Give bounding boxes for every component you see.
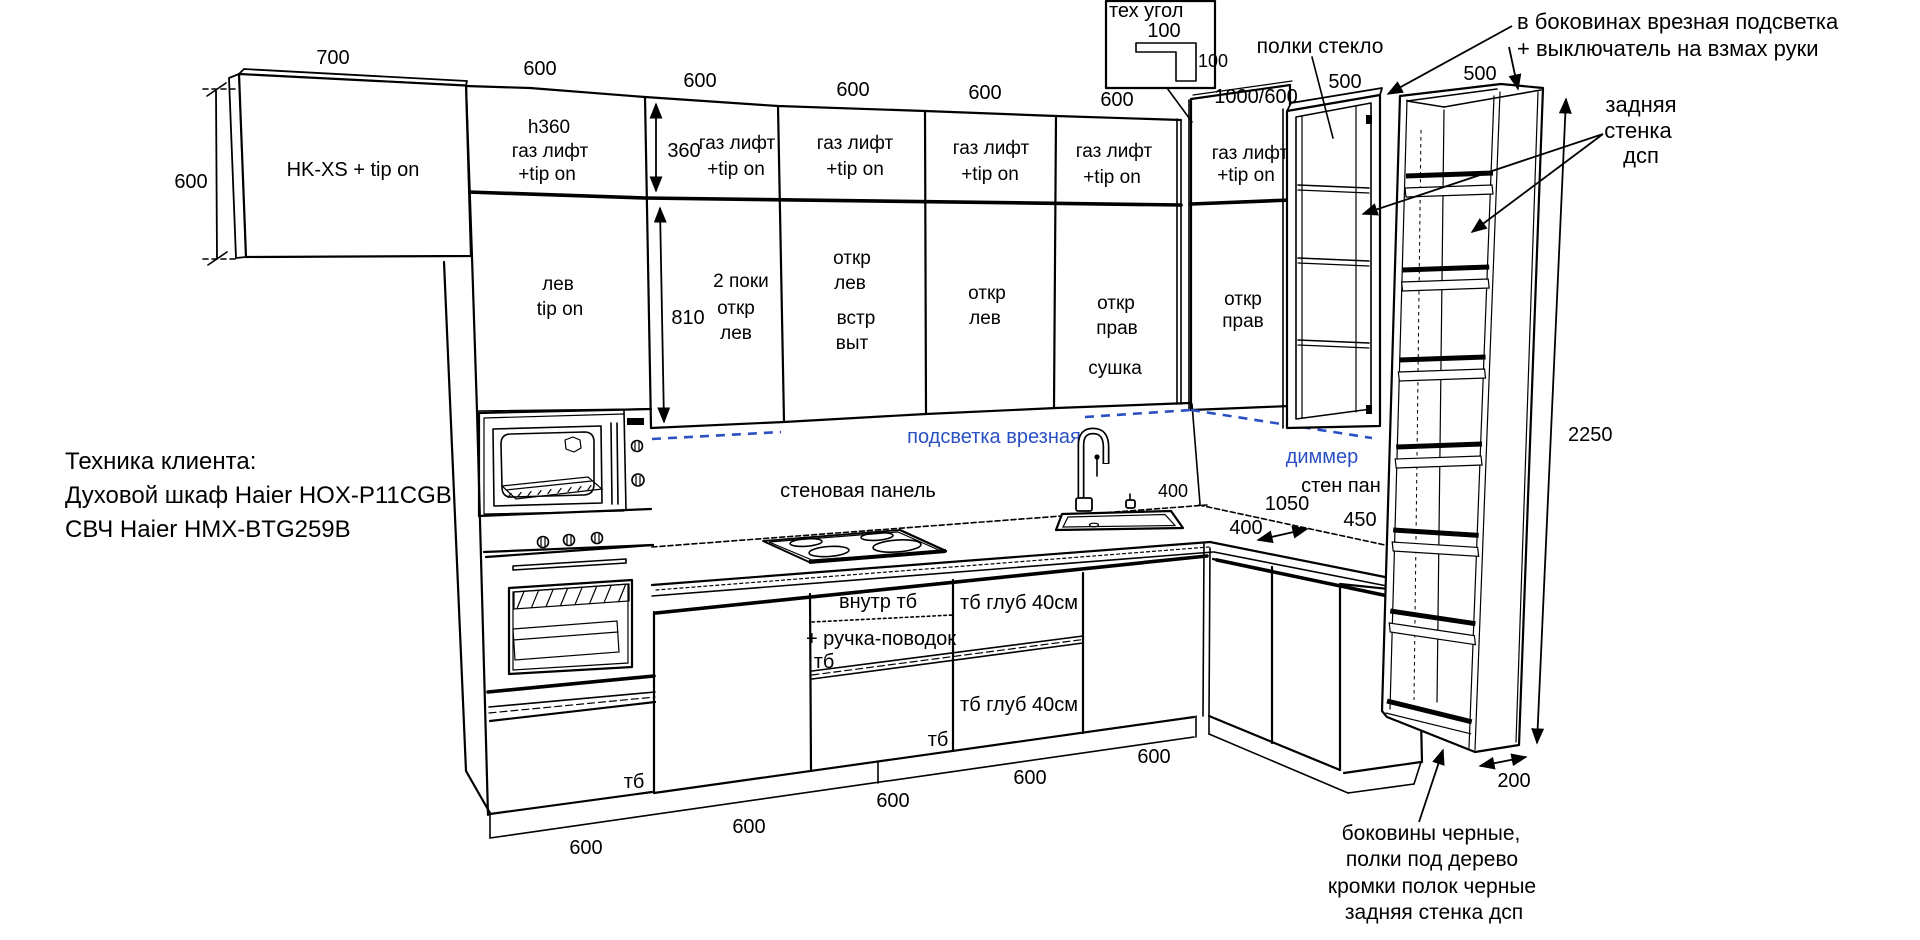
svg-text:диммер: диммер <box>1286 446 1359 468</box>
svg-text:600: 600 <box>569 837 602 859</box>
svg-text:газ лифт: газ лифт <box>699 133 776 154</box>
svg-text:сушка: сушка <box>1088 358 1142 379</box>
svg-text:полки стекло: полки стекло <box>1257 35 1384 58</box>
svg-text:600: 600 <box>174 171 207 193</box>
svg-text:600: 600 <box>876 790 909 812</box>
svg-text:стен пан: стен пан <box>1301 475 1381 497</box>
svg-text:1050: 1050 <box>1265 493 1310 515</box>
svg-text:в боковинах врезная подсветка: в боковинах врезная подсветка <box>1517 9 1839 34</box>
svg-text:450: 450 <box>1343 509 1376 531</box>
svg-text:лев: лев <box>720 323 752 344</box>
svg-text:+ выключатель на взмах руки: + выключатель на взмах руки <box>1517 36 1819 61</box>
svg-text:100: 100 <box>1198 51 1228 71</box>
svg-text:встр: встр <box>837 308 876 329</box>
svg-text:СВЧ Haier HMX-BTG259B: СВЧ Haier HMX-BTG259B <box>65 516 351 543</box>
svg-text:+tip on: +tip on <box>961 164 1019 185</box>
svg-text:600: 600 <box>836 79 869 101</box>
svg-text:откр: откр <box>833 248 871 269</box>
svg-text:задняя стенка дсп: задняя стенка дсп <box>1345 901 1523 924</box>
svg-text:выт: выт <box>836 333 869 354</box>
svg-text:лев: лев <box>542 274 574 295</box>
svg-text:газ лифт: газ лифт <box>1076 141 1153 162</box>
svg-text:600: 600 <box>968 82 1001 104</box>
svg-text:tip on: tip on <box>537 299 583 320</box>
svg-text:кромки полок черные: кромки полок черные <box>1328 875 1536 898</box>
svg-text:откр: откр <box>968 283 1006 304</box>
svg-text:100: 100 <box>1147 20 1180 42</box>
svg-text:газ лифт: газ лифт <box>1212 143 1289 164</box>
svg-text:задняя: задняя <box>1605 92 1676 117</box>
svg-text:200: 200 <box>1497 770 1530 792</box>
svg-text:600: 600 <box>732 816 765 838</box>
svg-text:+tip on: +tip on <box>1083 167 1141 188</box>
svg-text:Духовой шкаф Haier HOX-P11CGB: Духовой шкаф Haier HOX-P11CGB <box>65 482 452 509</box>
svg-text:600: 600 <box>683 70 716 92</box>
svg-text:HK-XS + tip on: HK-XS + tip on <box>287 159 420 181</box>
svg-text:1000/600: 1000/600 <box>1214 86 1297 108</box>
svg-text:+tip on: +tip on <box>826 159 884 180</box>
svg-text:прав: прав <box>1096 318 1138 339</box>
svg-text:+tip on: +tip on <box>518 164 576 185</box>
svg-text:360: 360 <box>667 140 700 162</box>
svg-text:тб глуб 40см: тб глуб 40см <box>960 592 1078 614</box>
svg-text:тб: тб <box>928 729 949 751</box>
svg-text:Техника клиента:: Техника клиента: <box>65 448 256 475</box>
svg-text:газ лифт: газ лифт <box>817 133 894 154</box>
svg-text:боковины черные,: боковины черные, <box>1342 822 1521 845</box>
svg-text:600: 600 <box>1137 746 1170 768</box>
svg-text:2250: 2250 <box>1568 424 1613 446</box>
svg-text:лев: лев <box>969 308 1001 329</box>
svg-text:400: 400 <box>1229 517 1262 539</box>
svg-text:400: 400 <box>1158 481 1188 501</box>
svg-text:500: 500 <box>1463 63 1496 85</box>
svg-text:тб: тб <box>814 651 835 673</box>
svg-text:полки под дерево: полки под дерево <box>1346 848 1518 871</box>
svg-text:газ лифт: газ лифт <box>512 141 589 162</box>
svg-text:подсветка врезная: подсветка врезная <box>907 426 1081 448</box>
svg-text:+ ручка-поводок: + ручка-поводок <box>806 628 956 650</box>
svg-text:h360: h360 <box>528 117 570 138</box>
svg-text:600: 600 <box>1013 767 1046 789</box>
svg-text:стенка: стенка <box>1604 118 1672 143</box>
svg-text:600: 600 <box>1100 89 1133 111</box>
svg-text:700: 700 <box>316 47 349 69</box>
svg-text:дсп: дсп <box>1623 143 1659 168</box>
svg-text:стеновая панель: стеновая панель <box>780 480 936 502</box>
svg-text:откр: откр <box>717 298 755 319</box>
svg-text:+tip on: +tip on <box>707 159 765 180</box>
svg-text:600: 600 <box>523 58 556 80</box>
svg-text:500: 500 <box>1328 71 1361 93</box>
svg-text:810: 810 <box>671 307 704 329</box>
svg-text:внутр тб: внутр тб <box>839 591 917 613</box>
svg-text:тб глуб 40см: тб глуб 40см <box>960 694 1078 716</box>
svg-text:откр: откр <box>1097 293 1135 314</box>
svg-text:откр: откр <box>1224 289 1262 310</box>
svg-text:тб: тб <box>624 771 645 793</box>
svg-text:+tip on: +tip on <box>1217 165 1275 186</box>
svg-text:газ лифт: газ лифт <box>953 138 1030 159</box>
svg-text:2 поки: 2 поки <box>713 271 769 292</box>
svg-text:тех угол: тех угол <box>1109 0 1183 22</box>
svg-text:лев: лев <box>834 273 866 294</box>
svg-text:прав: прав <box>1222 311 1264 332</box>
